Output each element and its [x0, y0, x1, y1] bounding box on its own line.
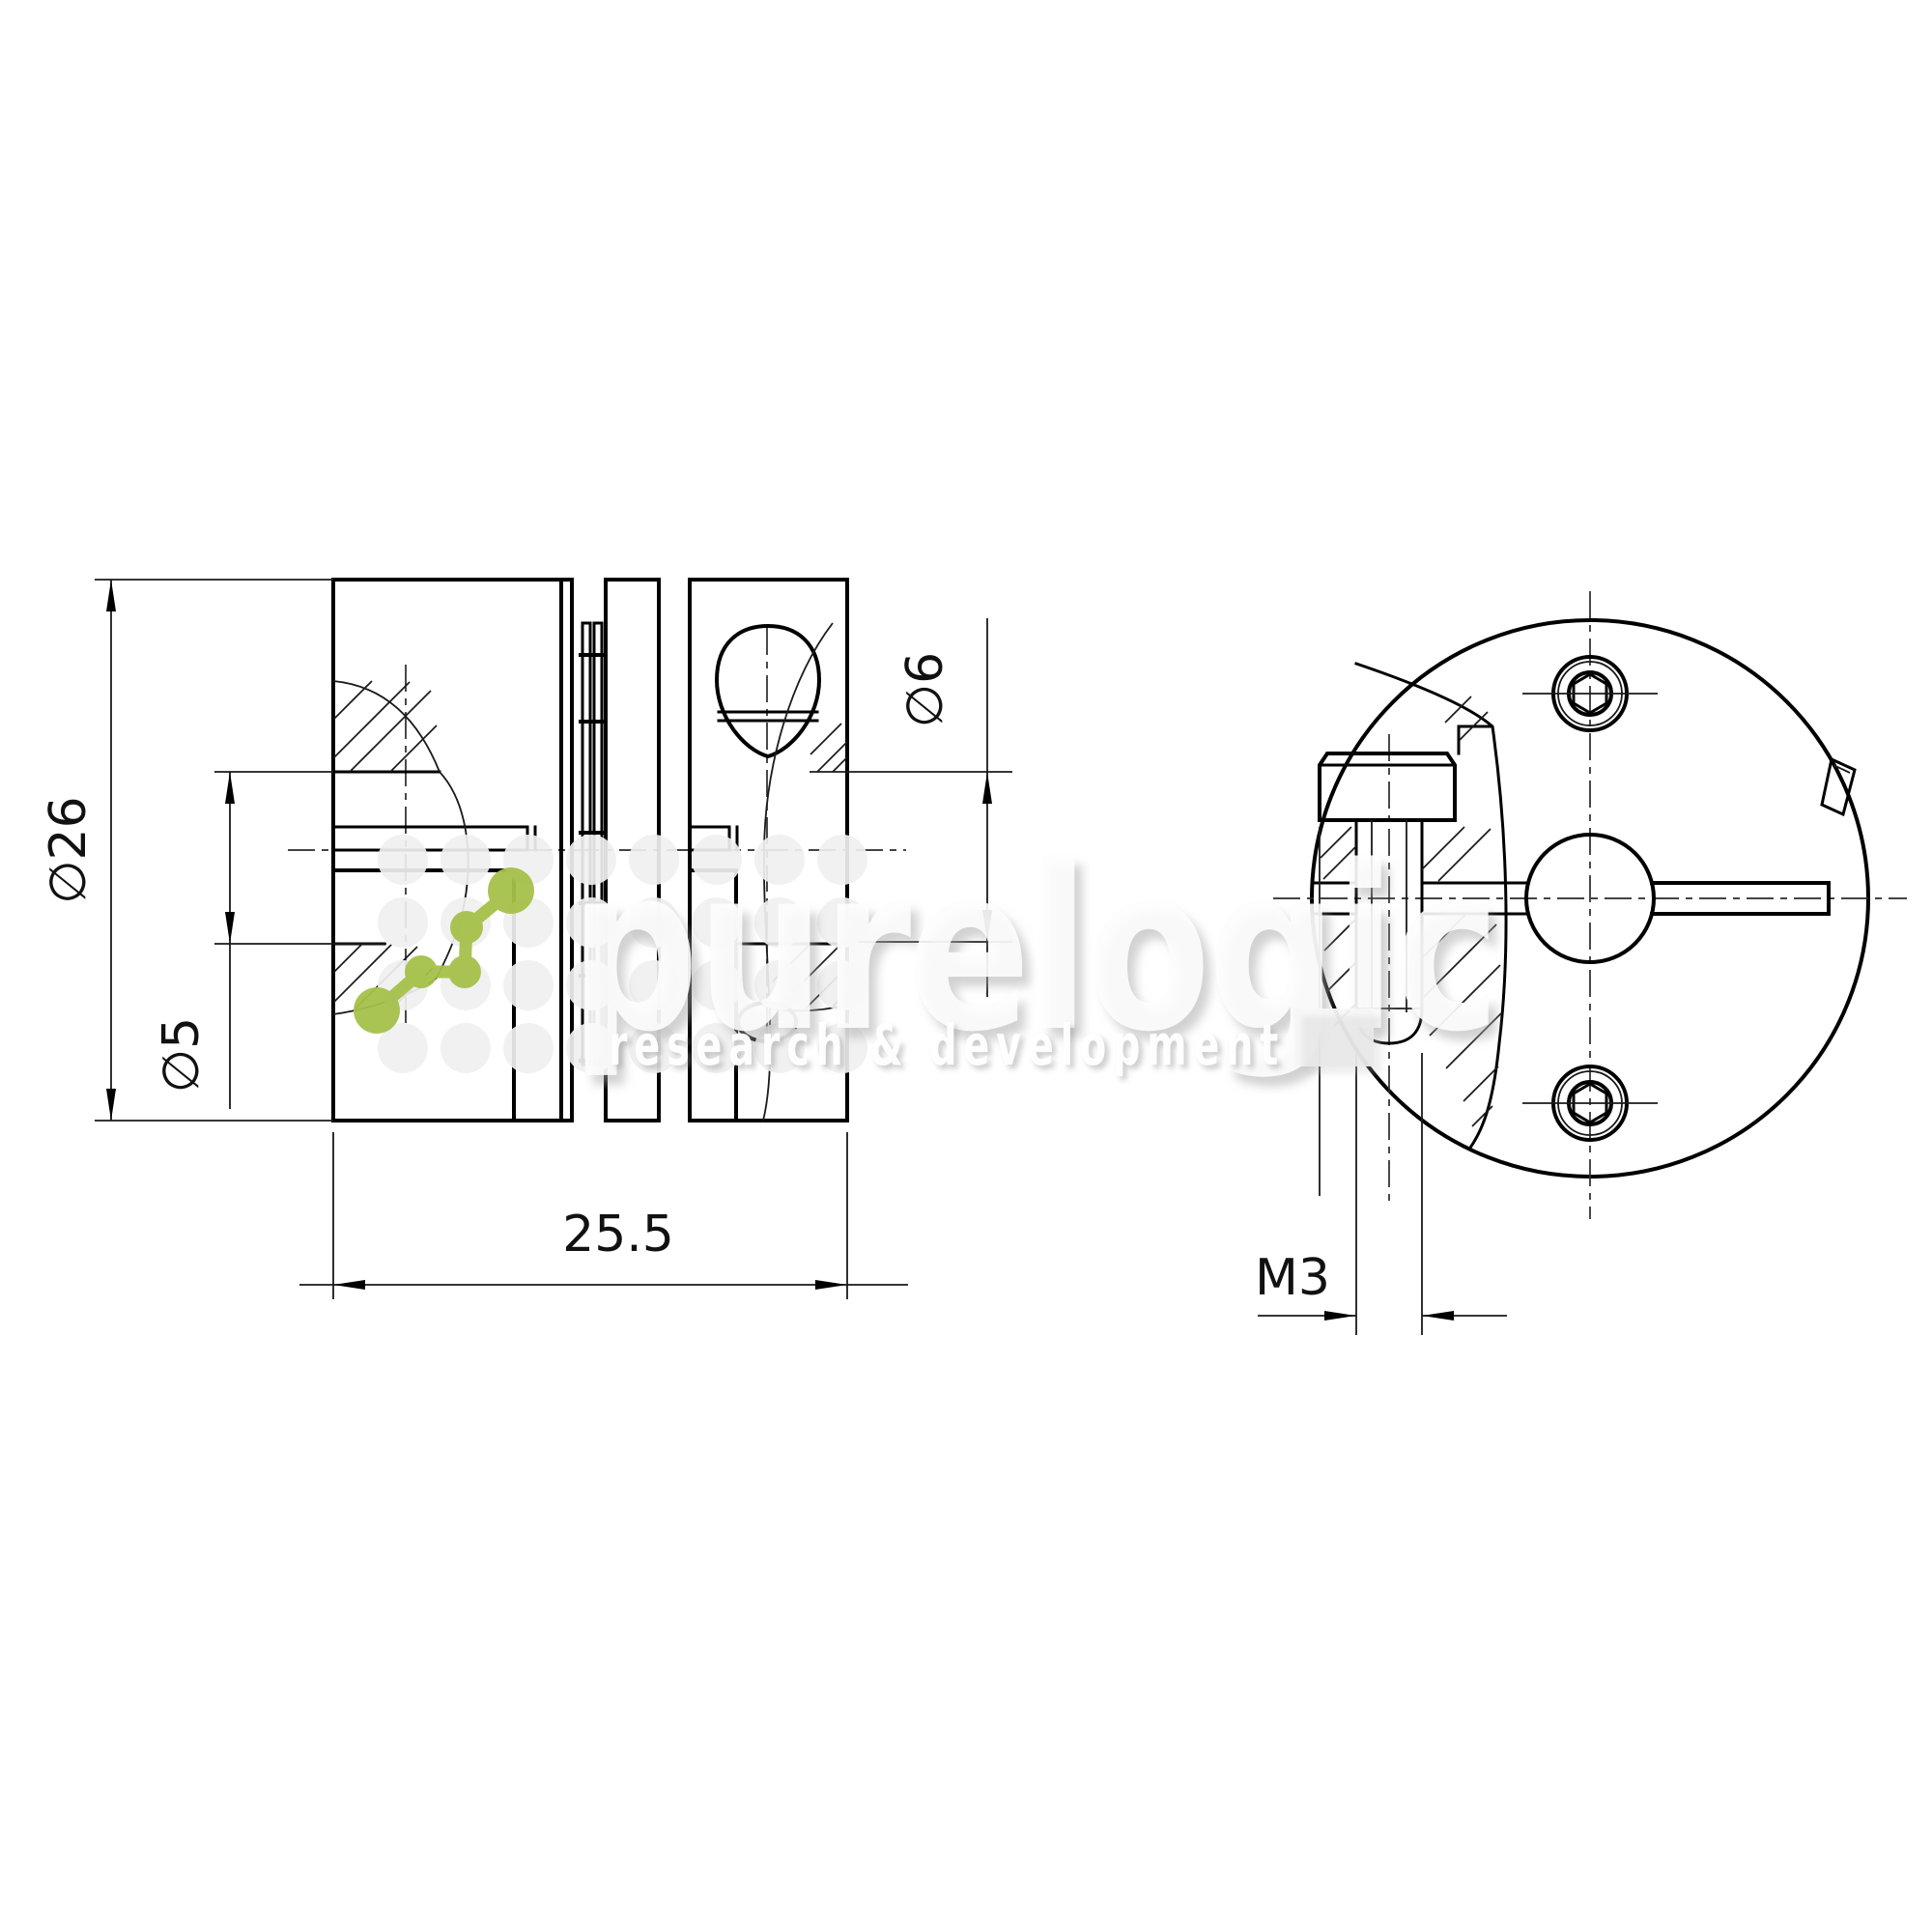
top-screw [1522, 657, 1658, 730]
dim-length: 25.5 [299, 1132, 908, 1299]
outer-diameter-label: ∅26 [40, 796, 98, 903]
drawing-canvas: ∅26 ∅5 ∅6 25.5 [0, 0, 1932, 1932]
left-bore-label: ∅5 [153, 1017, 211, 1093]
screw-head [1320, 753, 1455, 820]
hatch-right-hub-top [810, 724, 847, 772]
screw-thread-label: M3 [1255, 1249, 1330, 1307]
watermark: purelogic purelogic research & developme… [354, 818, 1505, 1092]
right-bore-label: ∅6 [896, 652, 954, 727]
watermark-tagline: research & development [609, 1012, 1285, 1078]
dim-left-bore: ∅5 [153, 772, 386, 1109]
watermark-logo-block-shadow [1302, 1016, 1381, 1074]
length-label: 25.5 [562, 1206, 674, 1264]
screw-access-hole [717, 626, 819, 756]
rim-tab [1822, 759, 1855, 814]
watermark-logo-graph [354, 867, 534, 1034]
hatch-left-hub-top [333, 681, 437, 772]
coupling-drawing: ∅26 ∅5 ∅6 25.5 [0, 0, 1932, 1932]
